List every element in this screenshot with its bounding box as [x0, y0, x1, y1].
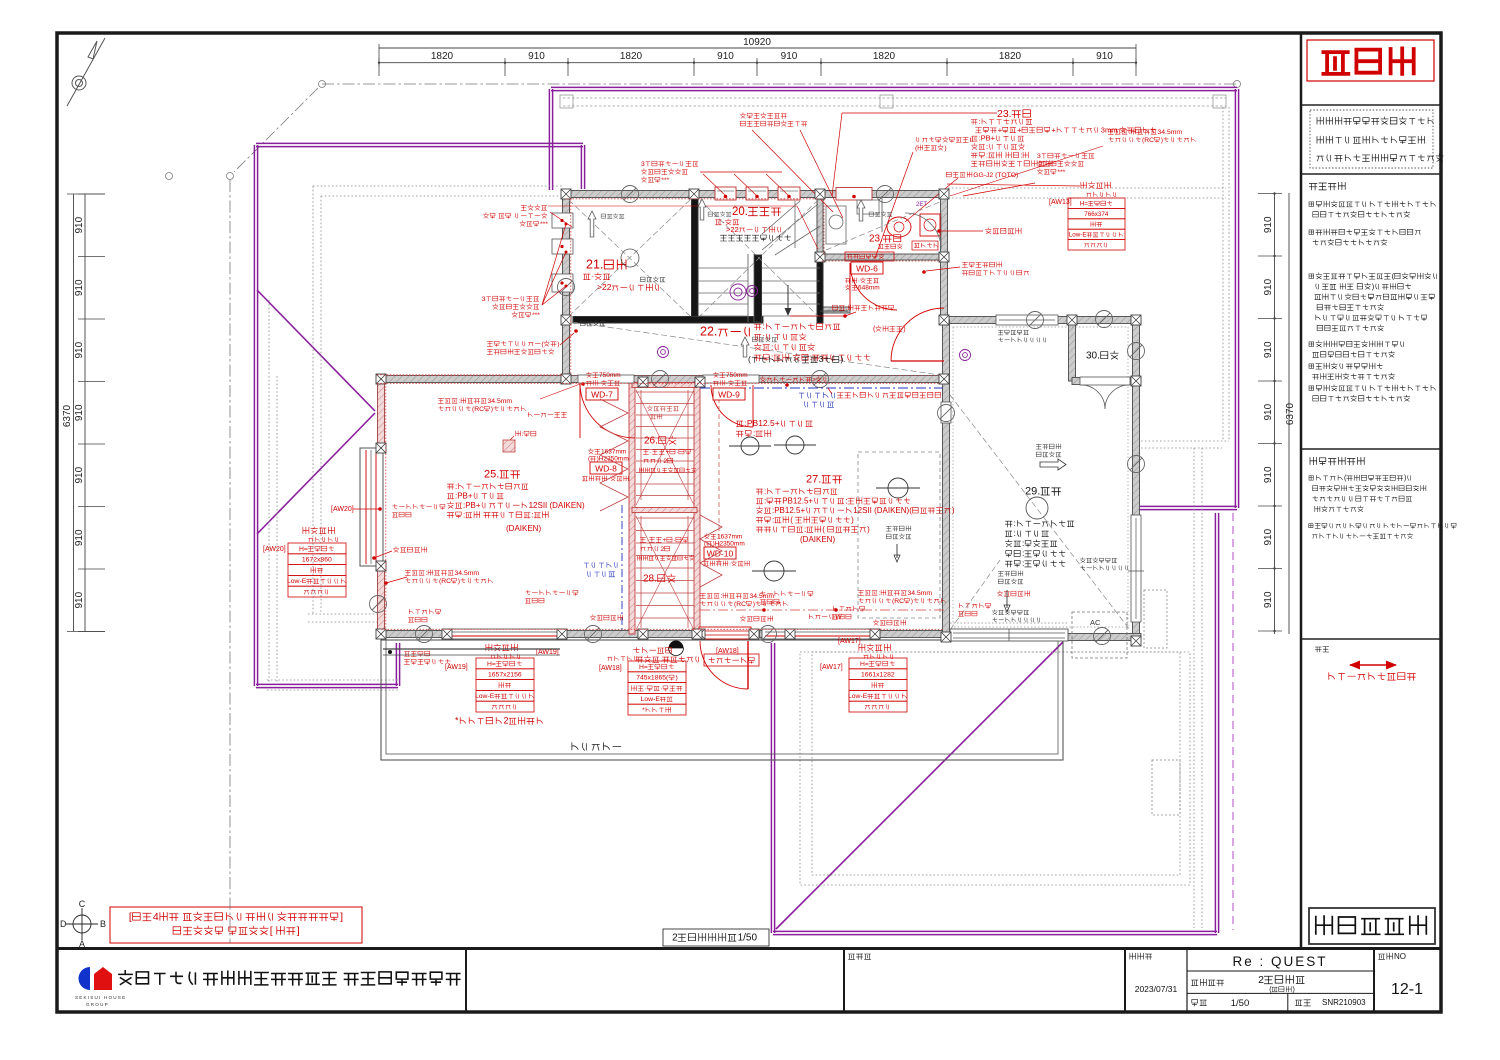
svg-text:910: 910: [1263, 528, 1274, 545]
svg-text:20.: 20.: [732, 206, 748, 218]
svg-text:2: 2: [504, 716, 509, 726]
svg-text:3: 3: [482, 296, 486, 303]
svg-text:): ): [557, 341, 559, 348]
svg-text:): ): [458, 578, 460, 585]
svg-text:(RC: (RC: [1142, 137, 1154, 144]
svg-text:H=: H=: [1080, 200, 1089, 207]
svg-text:***: ***: [1057, 169, 1065, 176]
svg-text:·: ·: [647, 537, 649, 544]
svg-text::PB12.5+: :PB12.5+: [772, 506, 805, 515]
svg-text:2: 2: [660, 546, 664, 553]
svg-text::: :: [522, 431, 524, 438]
svg-text::: :: [1128, 129, 1130, 136]
svg-text:(RC: (RC: [734, 601, 746, 608]
svg-text:10920: 10920: [743, 37, 771, 48]
svg-text:648mm: 648mm: [858, 285, 880, 292]
svg-text:1657x2156: 1657x2156: [488, 672, 522, 679]
svg-text:25.: 25.: [484, 468, 499, 480]
svg-text:910: 910: [74, 591, 85, 608]
svg-text:910: 910: [74, 216, 85, 233]
svg-text::: :: [979, 117, 981, 126]
svg-text:23.: 23.: [869, 234, 883, 245]
svg-text:(: (: [748, 354, 751, 364]
svg-text::: :: [845, 496, 847, 505]
svg-text:D: D: [60, 919, 67, 929]
svg-text:·: ·: [676, 449, 678, 456]
svg-text:2: 2: [663, 458, 667, 465]
svg-text:·: ·: [723, 217, 726, 226]
svg-text:·: ·: [729, 561, 731, 568]
svg-text:): ): [753, 601, 755, 608]
svg-text:[AW20]: [AW20]: [263, 546, 286, 553]
svg-text:SNR210903: SNR210903: [1322, 998, 1366, 1007]
svg-text:): ): [491, 406, 493, 413]
svg-text:]: ]: [297, 925, 300, 937]
svg-text:[AW20]: [AW20]: [331, 506, 354, 513]
svg-text:): ): [867, 525, 870, 534]
svg-text:23.: 23.: [997, 108, 1012, 120]
svg-text::PB+: :PB+: [463, 501, 481, 510]
svg-text:3: 3: [641, 161, 645, 168]
svg-text::: :: [772, 515, 774, 524]
svg-text:GROUP: GROUP: [86, 1002, 109, 1007]
svg-text:>22: >22: [597, 282, 612, 292]
svg-text:B: B: [100, 919, 106, 929]
svg-text:): ): [944, 145, 946, 152]
svg-text:+: +: [666, 449, 670, 456]
svg-text:745x1865(: 745x1865(: [636, 675, 669, 682]
svg-text::: :: [1020, 150, 1022, 159]
svg-text:34.5mm: 34.5mm: [455, 570, 480, 577]
svg-text:***: ***: [540, 221, 548, 228]
svg-text:(: (: [790, 515, 793, 524]
svg-text:PB12.5+: PB12.5+: [782, 496, 813, 505]
svg-text::: :: [1014, 518, 1016, 528]
svg-text:): ): [841, 354, 844, 364]
svg-text:*: *: [642, 707, 645, 714]
svg-text::: :: [425, 570, 427, 577]
svg-text::: :: [804, 525, 806, 534]
svg-text:1637mm: 1637mm: [601, 449, 626, 456]
svg-text:+: +: [663, 537, 667, 544]
svg-text:21.: 21.: [586, 258, 603, 272]
svg-text::: :: [1022, 558, 1024, 568]
svg-text:): ): [1404, 473, 1406, 482]
svg-text:34.5mm: 34.5mm: [488, 398, 513, 405]
svg-text:2023/07/31: 2023/07/31: [1135, 984, 1178, 994]
svg-text:910: 910: [74, 341, 85, 358]
svg-text::: :: [1022, 538, 1024, 548]
svg-text::: :: [764, 487, 766, 496]
svg-text:1672x860: 1672x860: [302, 557, 332, 564]
svg-text:·: ·: [645, 685, 647, 692]
svg-text:·: ·: [592, 271, 595, 281]
svg-text:2: 2: [1258, 974, 1264, 986]
svg-text:·: ·: [650, 449, 652, 456]
svg-text:WD-9: WD-9: [718, 390, 740, 400]
svg-text:II: II: [969, 137, 973, 144]
svg-text:910: 910: [1263, 278, 1274, 295]
svg-text:***: ***: [532, 312, 540, 319]
svg-text:(RC: (RC: [472, 406, 484, 413]
svg-text:Low-E: Low-E: [641, 696, 661, 703]
svg-text:3: 3: [819, 354, 824, 364]
svg-text:): ): [676, 675, 678, 682]
svg-text:910: 910: [74, 279, 85, 296]
svg-text:34.5mm: 34.5mm: [750, 593, 775, 600]
svg-text:): ): [1161, 137, 1163, 144]
svg-text:[AW17]: [AW17]: [838, 638, 861, 645]
svg-text:1/50: 1/50: [738, 933, 758, 944]
svg-text:WD-8: WD-8: [595, 464, 617, 474]
svg-text::PB12.5+: :PB12.5+: [745, 418, 780, 428]
svg-text:1661x1282: 1661x1282: [861, 672, 895, 679]
svg-text:)H2350mm: )H2350mm: [713, 541, 745, 548]
svg-text:28.: 28.: [643, 574, 657, 585]
svg-text:+: +: [998, 125, 1003, 134]
svg-text:NO: NO: [1394, 952, 1406, 961]
svg-text:Re : QUEST: Re : QUEST: [1232, 954, 1327, 969]
svg-text:910: 910: [74, 466, 85, 483]
svg-text:30.: 30.: [1086, 351, 1100, 362]
svg-text:AC: AC: [1090, 618, 1101, 627]
svg-text::: :: [720, 593, 722, 600]
svg-text:34.5mm: 34.5mm: [908, 590, 933, 597]
svg-text:·: ·: [660, 685, 662, 692]
svg-text:[AW18]: [AW18]: [599, 665, 622, 672]
svg-text::: :: [753, 428, 755, 438]
svg-text:750mm: 750mm: [599, 372, 621, 379]
svg-text:+: +: [1017, 125, 1022, 134]
svg-text:>22: >22: [726, 225, 739, 234]
svg-text:[: [: [270, 925, 273, 937]
svg-text:27.: 27.: [806, 473, 821, 485]
svg-text:(DAIKEN): (DAIKEN): [800, 535, 835, 544]
svg-text:): ): [1293, 986, 1295, 993]
svg-text:910: 910: [1263, 403, 1274, 420]
svg-text:): ): [952, 506, 955, 515]
svg-text:Low-E: Low-E: [287, 578, 307, 585]
svg-text:·: ·: [673, 537, 675, 544]
svg-text:910: 910: [74, 529, 85, 546]
svg-text:910: 910: [74, 404, 85, 421]
svg-text::: :: [763, 321, 765, 331]
svg-text:766x374: 766x374: [1084, 211, 1109, 218]
svg-text:Low-E: Low-E: [1069, 232, 1087, 239]
svg-text:12-1: 12-1: [1391, 981, 1423, 998]
svg-text:910: 910: [717, 51, 734, 62]
svg-text:4: 4: [153, 911, 159, 923]
svg-text:C: C: [79, 899, 86, 909]
svg-text:(RC: (RC: [439, 578, 451, 585]
svg-text:750mm: 750mm: [726, 372, 748, 379]
svg-text:WD-6: WD-6: [856, 264, 878, 274]
svg-text::: :: [846, 305, 848, 312]
svg-text:[AW17]: [AW17]: [820, 664, 843, 671]
svg-text:A: A: [79, 939, 85, 949]
svg-text:WD-7: WD-7: [591, 390, 613, 400]
svg-text:[AW19]: [AW19]: [445, 664, 468, 671]
svg-text::PB+: :PB+: [455, 491, 473, 500]
svg-text:6370: 6370: [1285, 402, 1296, 425]
svg-text:]: ]: [340, 911, 343, 923]
svg-text:Low-E: Low-E: [475, 693, 495, 700]
svg-text::: :: [1014, 528, 1016, 538]
svg-text:H=: H=: [487, 661, 496, 668]
svg-text:1/50: 1/50: [1231, 998, 1250, 1009]
svg-text:1820: 1820: [431, 51, 454, 62]
svg-text:1820: 1820: [620, 51, 643, 62]
svg-text:910: 910: [1263, 591, 1274, 608]
svg-text:12SII (DAIKEN): 12SII (DAIKEN): [529, 501, 585, 510]
svg-text::: :: [771, 342, 773, 352]
svg-text::: :: [878, 590, 880, 597]
svg-text:): ): [911, 598, 913, 605]
svg-text::: :: [771, 352, 773, 362]
svg-text:(RC: (RC: [892, 598, 904, 605]
svg-text:29.: 29.: [1025, 485, 1040, 497]
svg-text::: :: [458, 398, 460, 405]
svg-text:12SII (DAIKEN)(: 12SII (DAIKEN)(: [853, 506, 912, 515]
svg-text:22.: 22.: [700, 325, 717, 339]
svg-text:GG-J2 (TOTO): GG-J2 (TOTO): [973, 172, 1018, 179]
svg-text:*: *: [455, 716, 459, 726]
svg-text::: :: [764, 496, 766, 505]
svg-text:1820: 1820: [999, 51, 1022, 62]
svg-text:910: 910: [781, 51, 798, 62]
svg-text:(DAIKEN): (DAIKEN): [506, 524, 541, 533]
svg-text::: :: [455, 482, 457, 491]
svg-text:26.: 26.: [644, 436, 658, 447]
svg-text::: :: [1022, 548, 1024, 558]
svg-text:SEKISUI HOUSE: SEKISUI HOUSE: [75, 995, 126, 1000]
svg-text::: :: [463, 510, 465, 519]
svg-text:3mm: 3mm: [1101, 125, 1118, 134]
svg-text:): ): [851, 515, 854, 524]
svg-text:>: >: [812, 377, 816, 384]
svg-text:Low-E: Low-E: [848, 693, 868, 700]
svg-text:34.5mm: 34.5mm: [1158, 129, 1183, 136]
svg-text:***: ***: [661, 177, 669, 184]
svg-text:1820: 1820: [873, 51, 896, 62]
svg-text:+: +: [1051, 125, 1056, 134]
svg-text:1637mm: 1637mm: [717, 534, 742, 541]
svg-text::: :: [986, 150, 988, 159]
svg-text:H=: H=: [639, 664, 648, 671]
svg-text:H=: H=: [299, 546, 308, 553]
svg-text:6370: 6370: [62, 404, 73, 427]
svg-text:910: 910: [1263, 216, 1274, 233]
svg-text:W: W: [835, 614, 842, 621]
svg-text:910: 910: [1263, 466, 1274, 483]
svg-text::: :: [532, 510, 534, 519]
svg-text:910: 910: [528, 51, 545, 62]
svg-text:3: 3: [1037, 153, 1041, 160]
svg-text:(: (: [822, 525, 825, 534]
svg-text:): ): [903, 326, 905, 333]
svg-text:910: 910: [1096, 51, 1113, 62]
svg-text:910: 910: [1263, 341, 1274, 358]
svg-text:H=: H=: [860, 661, 869, 668]
svg-text:·: ·: [858, 278, 860, 285]
svg-text:[: [: [129, 911, 132, 923]
svg-text:2: 2: [672, 933, 678, 944]
